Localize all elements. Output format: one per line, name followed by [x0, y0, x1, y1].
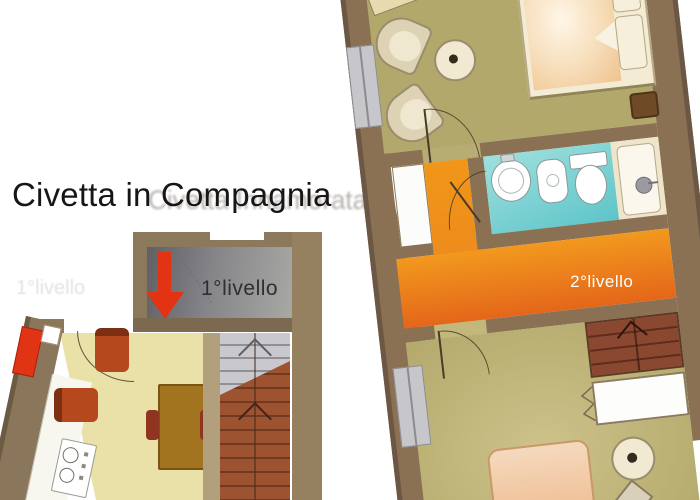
wall-mid-right [133, 318, 292, 332]
floor-plan-image: 1°livello [0, 0, 700, 500]
table-dot [448, 54, 458, 64]
chair [146, 410, 159, 440]
burner-icon [58, 466, 76, 484]
level2-label: 2°livello [570, 272, 633, 292]
door-leaf [40, 324, 61, 345]
wall-right [292, 232, 322, 500]
staircase-level1 [220, 333, 290, 500]
table-dot [627, 452, 638, 463]
wall-opening [210, 229, 264, 240]
floor-plan-level2: 2°livello [338, 0, 700, 500]
nightstand [629, 91, 660, 120]
down-arrow-icon [158, 252, 171, 294]
bidet [535, 157, 570, 204]
corner-watermark-text: 1°livello [16, 277, 85, 300]
shower [610, 137, 667, 224]
armchair-seat [384, 26, 425, 66]
chevron-up-icon [617, 321, 648, 352]
sink-basin [497, 166, 526, 195]
pillow [614, 14, 648, 71]
burner-icon [61, 446, 80, 465]
double-bed [514, 0, 657, 100]
page-title: Civetta in Compagnia [12, 176, 332, 214]
wall-left-upper [133, 232, 147, 330]
knob-icon [84, 452, 89, 457]
knob-icon [79, 475, 84, 480]
bidet-drain [546, 173, 560, 187]
level1-label: 1°livello [201, 277, 278, 301]
tap-icon [500, 153, 515, 163]
armchair [54, 388, 98, 422]
down-arrow-head-icon [146, 292, 184, 319]
double-bed [486, 439, 600, 500]
stair-wall [203, 333, 220, 500]
window-bar [359, 47, 370, 127]
staircase-level2 [585, 312, 685, 378]
window-bar [407, 368, 418, 446]
knob-icon [81, 464, 86, 469]
armchair [95, 328, 129, 372]
